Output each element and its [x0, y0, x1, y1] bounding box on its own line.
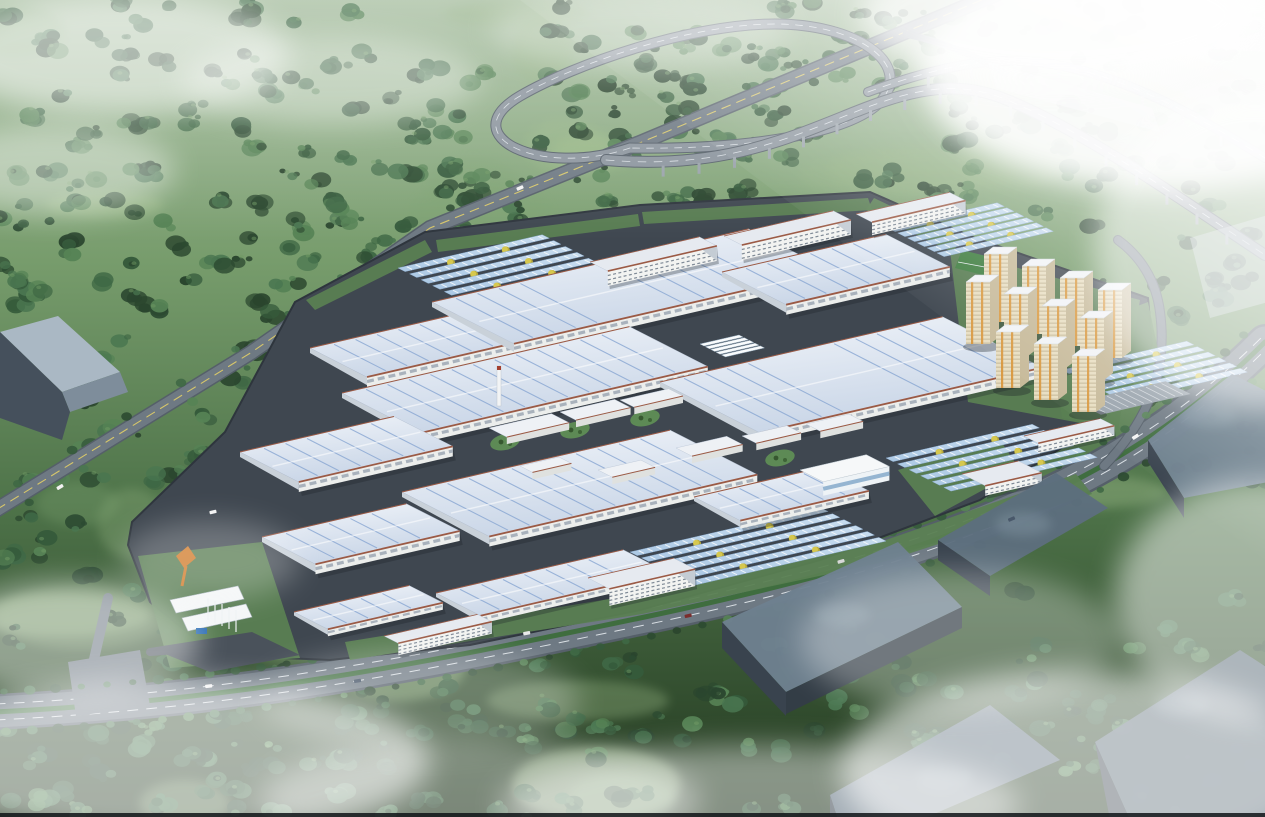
scan-artifact-edge — [0, 813, 1265, 817]
aerial-rendering — [0, 0, 1265, 817]
rendering-scene — [0, 0, 1265, 817]
